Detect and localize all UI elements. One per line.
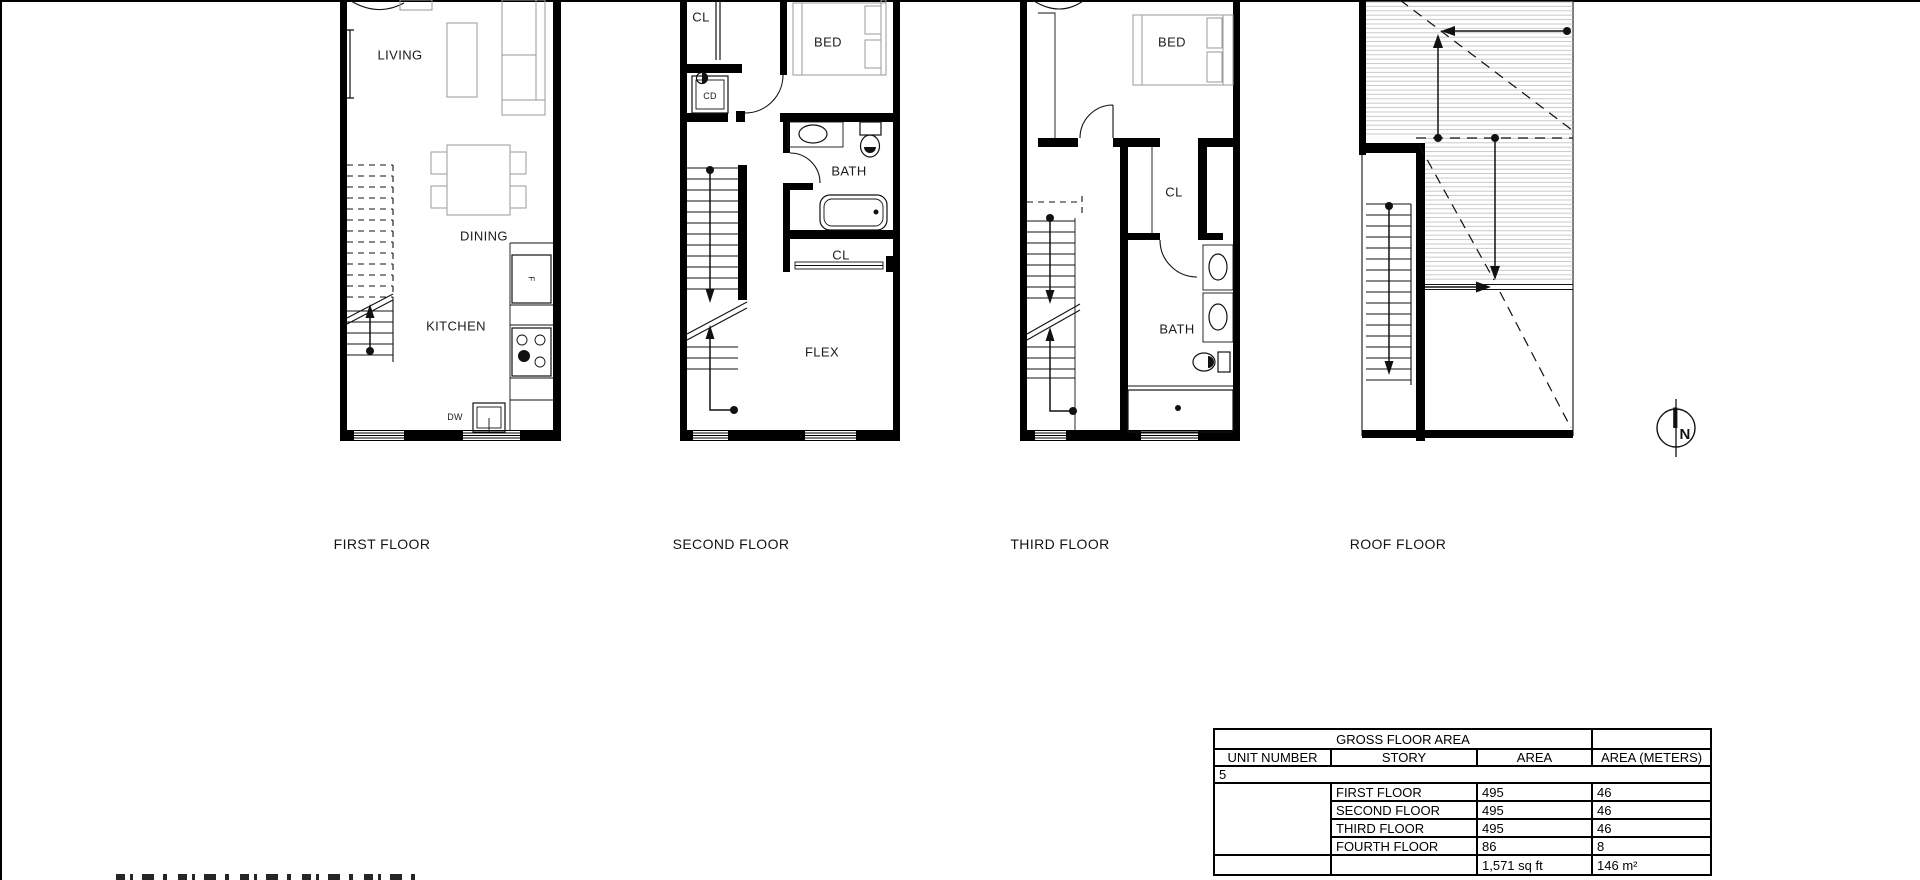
- table-title: GROSS FLOOR AREA: [1214, 729, 1592, 749]
- staircase: [347, 165, 393, 362]
- story-cell: FIRST FLOOR: [1331, 783, 1477, 801]
- coffee-table: [447, 23, 477, 97]
- second-floor-plan: [680, 0, 900, 443]
- double-vanity-sinks: [1203, 245, 1233, 342]
- area-meters-cell: 46: [1592, 783, 1711, 801]
- table-title-spacer: [1592, 729, 1711, 749]
- dining-table: [431, 145, 526, 215]
- bedroom-door-arc: [745, 75, 783, 113]
- clipped-note-text: [116, 874, 416, 880]
- area-meters-cell: 8: [1592, 837, 1711, 855]
- col-header-area-meters: AREA (METERS): [1592, 749, 1711, 766]
- north-letter: N: [1680, 426, 1691, 443]
- area-cell: 86: [1477, 837, 1592, 855]
- staircase: [1027, 196, 1082, 430]
- area-meters-cell: 46: [1592, 819, 1711, 837]
- room-label-dining: DINING: [460, 229, 508, 244]
- kitchen-counter: [510, 243, 553, 430]
- room-label-bath-2f: BATH: [831, 164, 866, 179]
- area-cell: 495: [1477, 819, 1592, 837]
- room-label-kitchen: KITCHEN: [426, 319, 486, 334]
- plan-title-second: SECOND FLOOR: [673, 536, 790, 552]
- story-cell: SECOND FLOOR: [1331, 801, 1477, 819]
- stair-bulkhead: [1366, 202, 1411, 385]
- interior-walls: [1038, 138, 1240, 432]
- closet-door-arc: [1160, 240, 1197, 277]
- plan-title-first: FIRST FLOOR: [334, 536, 431, 552]
- plan-title-third: THIRD FLOOR: [1010, 536, 1109, 552]
- wardrobe: [1038, 13, 1055, 138]
- unit-number-cell: 5: [1214, 766, 1711, 783]
- total-area-meters-cell: 146 m²: [1592, 855, 1711, 875]
- table-total-row: 1,571 sq ft 146 m²: [1214, 855, 1711, 875]
- entry-door-arc: [351, 1, 404, 10]
- room-label-flex: FLEX: [805, 345, 839, 360]
- col-header-area: AREA: [1477, 749, 1592, 766]
- closet-door: [716, 0, 720, 60]
- roof-hatch: [1366, 0, 1573, 283]
- room-label-closet-3f: CL: [1165, 185, 1182, 200]
- fixture-label-dishwasher: DW: [447, 412, 462, 422]
- sheet-border-top: [0, 0, 1920, 2]
- plan-title-roof: ROOF FLOOR: [1350, 536, 1447, 552]
- toilet: [1193, 352, 1230, 372]
- room-label-bath-3f: BATH: [1159, 322, 1194, 337]
- bath-vanity-sink: [788, 122, 843, 147]
- toilet: [860, 122, 881, 157]
- story-cell: THIRD FLOOR: [1331, 819, 1477, 837]
- sheet-border-left: [0, 0, 2, 880]
- slope-arrow-right: [1425, 282, 1491, 293]
- area-cell: 495: [1477, 783, 1592, 801]
- room-label-bed-2f: BED: [814, 35, 842, 50]
- window-leaf: [347, 30, 354, 98]
- room-label-closet-top: CL: [692, 10, 709, 25]
- bathtub: [820, 195, 887, 230]
- col-header-story: STORY: [1331, 749, 1477, 766]
- roof-floor-plan: [1359, 0, 1580, 443]
- bath-door-arc: [790, 153, 820, 183]
- area-meters-cell: 46: [1592, 801, 1711, 819]
- room-label-living: LIVING: [377, 48, 422, 63]
- north-arrow-icon: N: [1638, 392, 1716, 470]
- table-row: FIRST FLOOR 495 46: [1214, 783, 1711, 801]
- room-label-closet-mid: CL: [832, 248, 849, 263]
- room-label-bed-3f: BED: [1158, 35, 1186, 50]
- staircase: [687, 165, 747, 414]
- first-floor-plan: [340, 0, 561, 443]
- bed: [1133, 15, 1233, 85]
- shower-tub: [1128, 386, 1233, 432]
- area-cell: 495: [1477, 801, 1592, 819]
- stove: [512, 328, 551, 376]
- fixture-label-cd: CD: [703, 91, 716, 101]
- third-floor-plan: [1020, 0, 1240, 443]
- drawing-sheet: LIVING DINING KITCHEN DW F CL CD BED BAT…: [0, 0, 1920, 880]
- fixture-label-fridge: F: [527, 276, 536, 281]
- total-unit-empty-cell: [1214, 855, 1331, 875]
- hall-door: [1080, 105, 1113, 138]
- bedroom-door-arc: [1034, 1, 1083, 9]
- story-cell: FOURTH FLOOR: [1331, 837, 1477, 855]
- gross-floor-area-table: GROSS FLOOR AREA UNIT NUMBER STORY AREA …: [1213, 728, 1712, 876]
- kitchen-sink: [473, 403, 505, 432]
- total-area-cell: 1,571 sq ft: [1477, 855, 1592, 875]
- total-story-empty-cell: [1331, 855, 1477, 875]
- unit-number-empty-cell: [1214, 783, 1331, 855]
- col-header-unit-number: UNIT NUMBER: [1214, 749, 1331, 766]
